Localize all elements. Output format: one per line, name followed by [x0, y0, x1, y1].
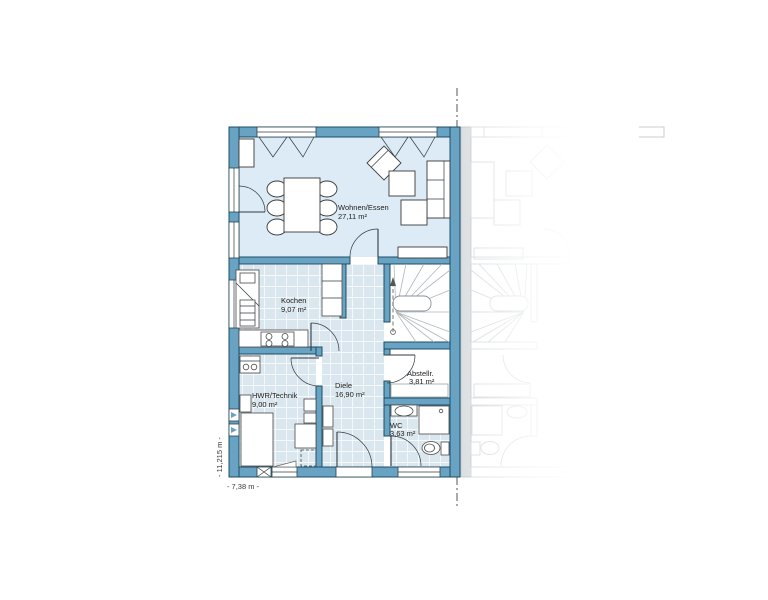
- room-name: Diele: [335, 381, 352, 390]
- wall-stairs-left: [384, 264, 390, 322]
- window-wc-bottom: [398, 467, 440, 477]
- room-name: Wohnen/Essen: [338, 203, 389, 212]
- dimension-width-label: - 7,38 m -: [227, 482, 260, 491]
- chimney-utility-block: [236, 270, 259, 328]
- room-area: 27,11 m²: [338, 212, 368, 221]
- side-table: [389, 171, 415, 196]
- drain-box-icon: [257, 467, 271, 477]
- label-abstellraum: Abstellr. 3,81 m²: [407, 369, 435, 386]
- dining-table: [267, 178, 337, 235]
- storage-unit: [241, 413, 273, 466]
- floor-wohnen-essen: [239, 137, 450, 257]
- wall-hwr-diele-bottom: [316, 386, 322, 467]
- wardrobe-2: [323, 429, 333, 446]
- washer-icon: [240, 356, 260, 373]
- room-area: 3,81 m²: [409, 377, 435, 386]
- room-name: Kochen: [281, 296, 306, 305]
- room-area: 3,63 m²: [390, 429, 416, 438]
- room-name: HWR/Technik: [252, 391, 298, 400]
- room-area: 9,07 m²: [281, 305, 307, 314]
- floor-plan-page: Wohnen/Essen 27,11 m² Kochen 9,07 m² Die…: [0, 0, 768, 600]
- wall-abstell-wc: [384, 398, 450, 405]
- fade-overlay: [459, 80, 639, 550]
- shelf-2: [304, 413, 316, 423]
- wall-abstell-left-top: [384, 349, 390, 355]
- window-hwr-bottom: [272, 467, 297, 477]
- wall-stairs-bottom: [384, 342, 450, 349]
- wall-outer-right: [450, 127, 460, 477]
- shelf: [239, 139, 254, 167]
- toilet-icon: [422, 442, 449, 456]
- neighbor-unit-plan: [459, 80, 664, 550]
- floor-diele-upper: [346, 264, 384, 347]
- floor-kochen-door-gap: [340, 318, 346, 347]
- room-area: 9,00 m²: [252, 400, 278, 409]
- sideboard: [398, 247, 447, 258]
- label-kochen: Kochen 9,07 m²: [281, 296, 307, 314]
- wall-abstell-left-bottom: [384, 381, 390, 398]
- cooktop-icon: [261, 332, 294, 347]
- dimension-height-label: - 11,215 m -: [215, 437, 224, 477]
- sofa: [427, 161, 450, 218]
- cabinet: [240, 395, 251, 412]
- wardrobe-1: [323, 406, 333, 427]
- shelf-1: [304, 399, 316, 411]
- sink-icon: [391, 405, 417, 416]
- wall-kitchen-hwr: [239, 347, 316, 354]
- furniture-diele: [323, 406, 333, 446]
- wall-hwr-diele-top: [316, 347, 322, 356]
- window-living-left: [229, 222, 239, 258]
- wall-living-left: [239, 257, 350, 264]
- armchair-square: [401, 200, 427, 225]
- room-area: 16,90 m²: [335, 390, 365, 399]
- shower-icon: [419, 406, 449, 434]
- kitchen-tall-unit: [322, 264, 342, 316]
- stair-core: [393, 296, 431, 311]
- floor-plan-canvas: Wohnen/Essen 27,11 m² Kochen 9,07 m² Die…: [0, 0, 768, 600]
- worktable: [295, 424, 316, 448]
